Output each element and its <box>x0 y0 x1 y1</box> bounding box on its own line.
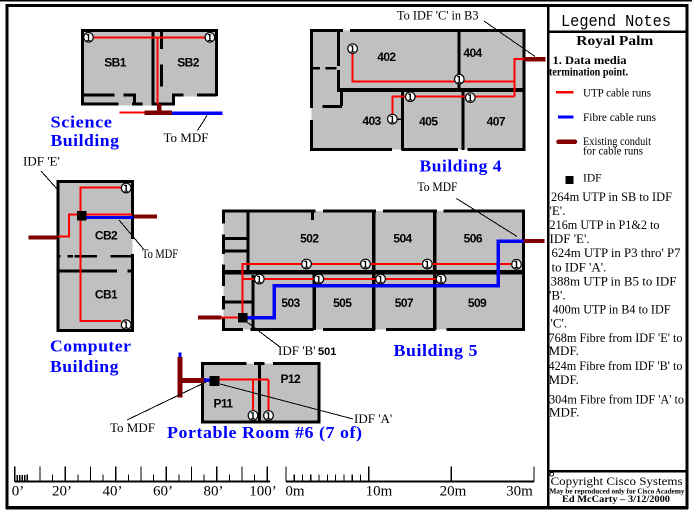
svg-text:405: 405 <box>419 114 438 128</box>
svg-text:MDF.: MDF. <box>549 405 579 420</box>
svg-text:Ed McCarty – 3/12/2000: Ed McCarty – 3/12/2000 <box>562 494 670 504</box>
svg-text:30m: 30m <box>506 484 533 500</box>
svg-text:'B'.: 'B'. <box>549 288 566 303</box>
svg-text:424m Fibre from IDF 'B' to: 424m Fibre from IDF 'B' to <box>549 358 683 373</box>
svg-text:IDF: IDF <box>583 173 602 185</box>
svg-text:505: 505 <box>333 296 352 310</box>
svg-text:MDF.: MDF. <box>549 343 579 358</box>
svg-text:501: 501 <box>318 346 336 358</box>
svg-text:10m: 10m <box>366 484 393 500</box>
svg-text:509: 509 <box>468 296 487 310</box>
svg-text:SB1: SB1 <box>104 56 126 70</box>
svg-text:503: 503 <box>281 296 300 310</box>
svg-text:506: 506 <box>464 232 483 246</box>
svg-text:Royal Palm: Royal Palm <box>576 34 653 49</box>
svg-text:'C'.: 'C'. <box>551 316 568 331</box>
svg-text:to IDF 'A'.: to IDF 'A'. <box>552 259 607 274</box>
svg-text:402: 402 <box>377 50 396 64</box>
svg-text:Portable Room #6 (7 of): Portable Room #6 (7 of) <box>167 423 363 442</box>
svg-text:To MDF: To MDF <box>142 246 178 261</box>
svg-text:CB1: CB1 <box>95 288 118 302</box>
svg-text:264m UTP in SB to IDF: 264m UTP in SB to IDF <box>551 189 672 204</box>
svg-text:To IDF 'C' in B3: To IDF 'C' in B3 <box>397 7 479 22</box>
svg-text:624m UTP in P3 thro' P7: 624m UTP in P3 thro' P7 <box>552 245 681 260</box>
svg-text:403: 403 <box>362 114 381 128</box>
svg-text:0’: 0’ <box>12 484 25 500</box>
svg-text:504: 504 <box>393 232 412 246</box>
svg-text:80’: 80’ <box>204 484 224 500</box>
svg-text:388m UTP in B5 to IDF: 388m UTP in B5 to IDF <box>551 273 677 288</box>
svg-text:0m: 0m <box>285 484 305 500</box>
svg-text:Legend Notes: Legend Notes <box>561 12 671 31</box>
svg-text:Computer: Computer <box>50 337 132 356</box>
svg-text:40’: 40’ <box>103 484 123 500</box>
svg-text:P12: P12 <box>281 372 301 386</box>
svg-text:IDF 'E'.: IDF 'E'. <box>550 231 590 246</box>
svg-text:Building: Building <box>50 357 119 376</box>
svg-text:IDF 'B': IDF 'B' <box>278 343 316 358</box>
svg-text:Copyright Cisco Systems: Copyright Cisco Systems <box>551 474 683 488</box>
svg-text:MDF.: MDF. <box>549 372 579 387</box>
svg-text:UTP cable runs: UTP cable runs <box>583 87 651 99</box>
svg-text:To MDF: To MDF <box>418 179 458 194</box>
svg-text:To MDF: To MDF <box>110 420 155 435</box>
svg-text:for cable runs: for cable runs <box>583 146 643 158</box>
svg-text:'E'.: 'E'. <box>550 203 566 218</box>
svg-text:100’: 100’ <box>249 484 277 500</box>
svg-text:Building 4: Building 4 <box>420 157 503 176</box>
svg-text:IDF 'E': IDF 'E' <box>23 154 60 169</box>
svg-text:SB2: SB2 <box>177 56 199 70</box>
svg-text:To MDF: To MDF <box>164 130 209 145</box>
svg-text:404: 404 <box>463 46 482 60</box>
svg-text:Fibre cable runs: Fibre cable runs <box>583 112 657 124</box>
svg-text:Building 5: Building 5 <box>394 341 479 360</box>
svg-text:CB2: CB2 <box>95 229 118 243</box>
svg-text:Science: Science <box>51 113 113 132</box>
svg-text:60’: 60’ <box>153 484 173 500</box>
svg-text:502: 502 <box>300 232 319 246</box>
svg-text:termination point.: termination point. <box>549 65 628 79</box>
svg-text:20m: 20m <box>440 484 467 500</box>
svg-text:P11: P11 <box>214 397 234 411</box>
svg-text:Building: Building <box>51 131 120 150</box>
svg-text:216m UTP in P1&2 to: 216m UTP in P1&2 to <box>550 217 660 232</box>
svg-text:407: 407 <box>487 114 506 128</box>
svg-text:400m UTP in B4 to IDF: 400m UTP in B4 to IDF <box>553 302 671 317</box>
svg-text:20’: 20’ <box>52 484 72 500</box>
svg-text:507: 507 <box>395 296 414 310</box>
